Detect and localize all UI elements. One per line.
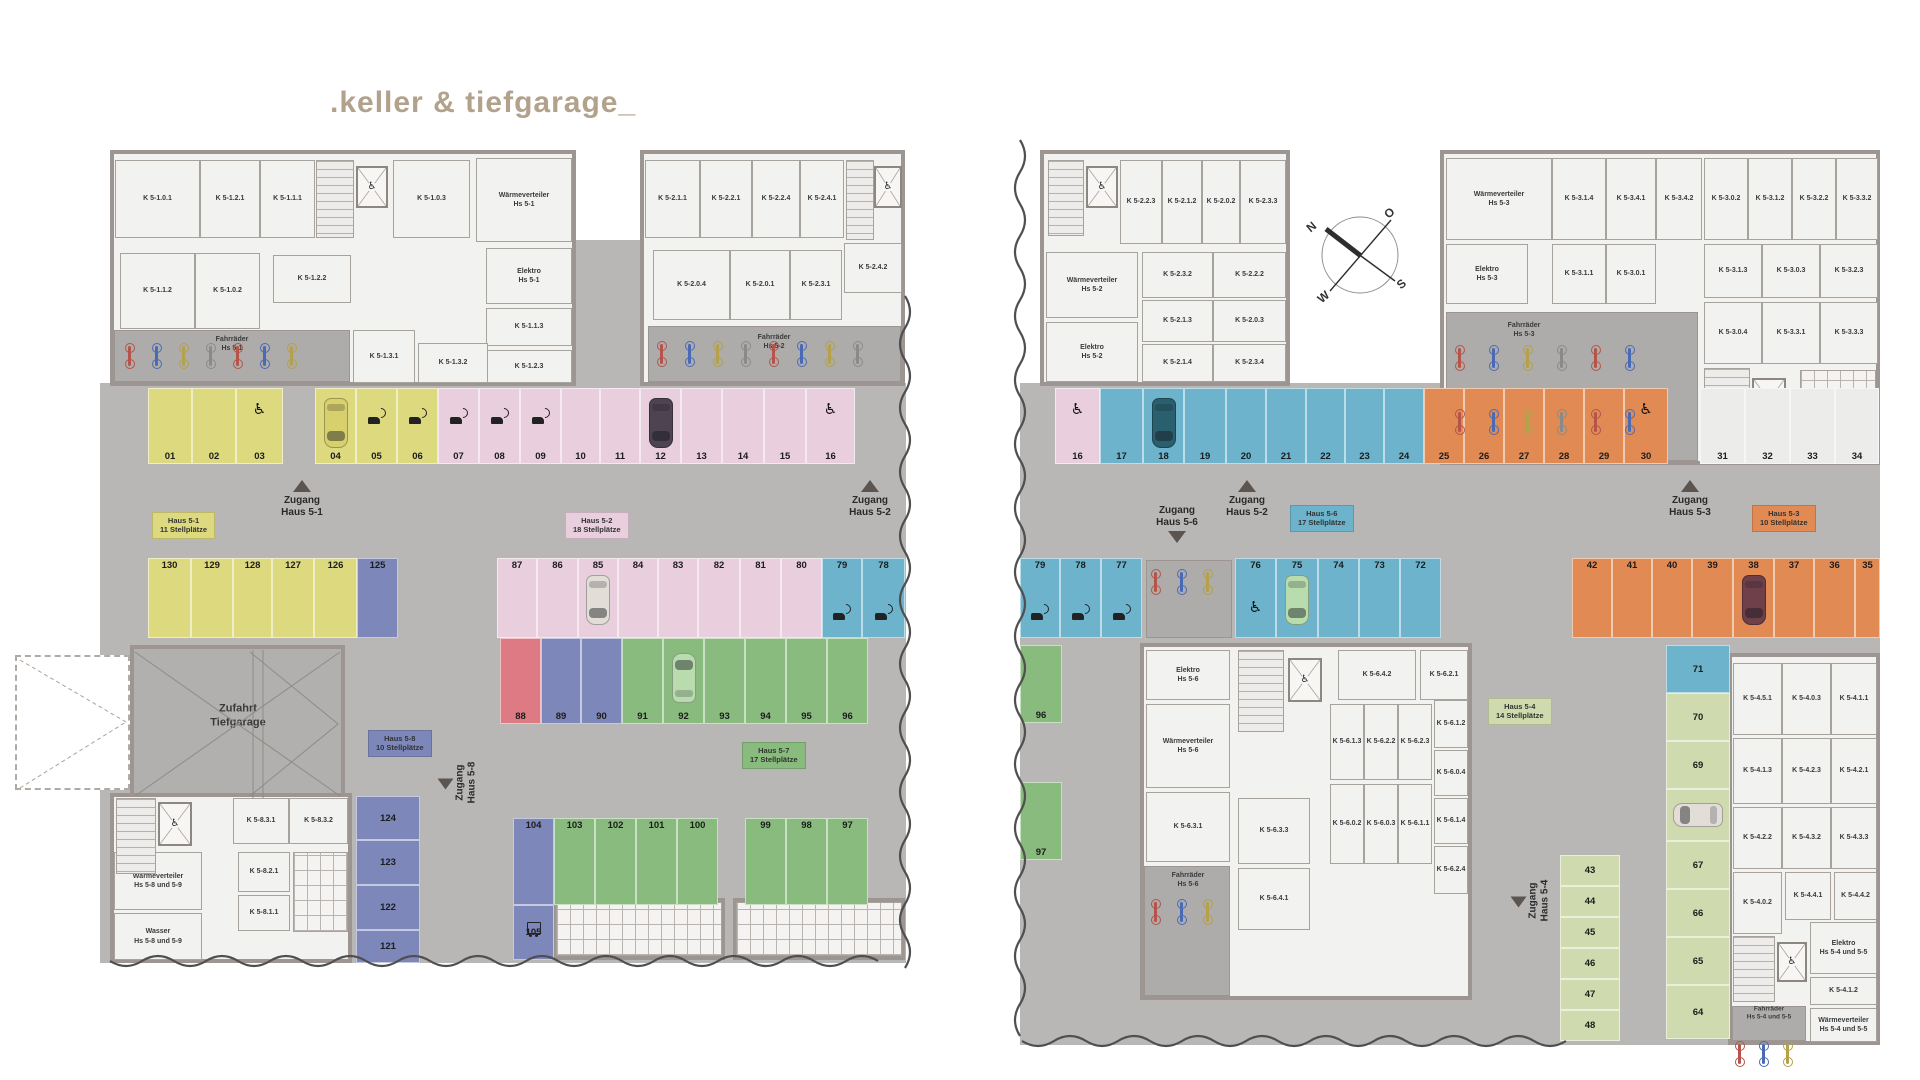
room-label: K 5-6.4.2: [1363, 670, 1392, 679]
room: Wärmeverteiler Hs 5-2: [1046, 252, 1138, 318]
room: K 5-6.2.1: [1420, 650, 1468, 700]
access-label-text: Zugang Haus 5-4: [1528, 859, 1551, 943]
room-label: K 5-8.3.2: [304, 816, 333, 825]
room-label: K 5-2.0.3: [1235, 316, 1264, 325]
room-label: K 5-3.2.2: [1800, 194, 1829, 203]
parking-space: 66: [1666, 889, 1730, 937]
compass-needle-tail: [1361, 256, 1395, 281]
parking-space: 17: [1100, 388, 1143, 464]
parking-space-number: 33: [1790, 451, 1835, 462]
room-label: Wärmeverteiler Hs 5-8 und 5-9: [133, 872, 184, 890]
parking-space: 36: [1814, 558, 1855, 638]
room-label: K 5-1.0.3: [417, 194, 446, 203]
parking-space-number: 28: [1544, 451, 1584, 462]
parking-space-number: 88: [500, 711, 541, 722]
parking-space-number: 86: [537, 560, 578, 571]
room: K 5-6.1.3: [1330, 704, 1364, 780]
bicycle-icon: [128, 346, 131, 366]
room: K 5-2.3.1: [790, 250, 842, 320]
parking-space: 44: [1560, 886, 1620, 917]
stairs: [116, 798, 156, 874]
parking-space: 01: [148, 388, 192, 464]
stall-count-badge: Haus 5-310 Stellplätze: [1752, 505, 1816, 532]
room-label: Elektro Hs 5-6: [1176, 666, 1200, 684]
parking-space-number: 25: [1424, 451, 1464, 462]
room: K 5-6.0.2: [1330, 784, 1364, 864]
parking-space: 07: [438, 388, 479, 464]
parking-space-number: 24: [1384, 451, 1424, 462]
badge-count-label: 10 Stellplätze: [376, 743, 424, 752]
room-label: Elektro Hs 5-2: [1080, 343, 1104, 361]
bicycle-icon: [1458, 412, 1461, 432]
stall-count-badge: Haus 5-717 Stellplätze: [742, 742, 806, 769]
stairs: [1733, 936, 1775, 1002]
badge-count-label: 17 Stellplätze: [750, 755, 798, 764]
badge-count-label: 14 Stellplätze: [1496, 711, 1544, 720]
stairs: [1238, 650, 1284, 732]
parking-space: 100: [677, 818, 718, 905]
room: K 5-4.1.3: [1733, 738, 1782, 804]
page-title: .keller & tiefgarage_: [330, 86, 636, 120]
parking-space: 98: [786, 818, 827, 905]
room-label: K 5-2.1.2: [1168, 197, 1197, 206]
room: K 5-2.3.2: [1142, 252, 1213, 298]
parking-space-number: 21: [1266, 451, 1306, 462]
parking-space-number: 90: [581, 711, 622, 722]
parking-space-number: 34: [1835, 451, 1879, 462]
wheelchair-icon: ♿: [368, 182, 377, 192]
parking-space-number: 128: [233, 560, 272, 571]
parking-space: 78: [862, 558, 905, 638]
parking-space: 13: [681, 388, 722, 464]
stall-count-badge: Haus 5-111 Stellplätze: [152, 512, 215, 539]
parking-space-number: 32: [1745, 451, 1790, 462]
wheelchair-icon: ♿: [1788, 957, 1797, 967]
access-label-text: Zugang Haus 5-1: [260, 495, 344, 518]
ev-charging-icon: [875, 604, 893, 620]
room: K 5-2.1.4: [1142, 344, 1213, 382]
wheelchair-icon: ♿: [1055, 402, 1100, 417]
room-label: K 5-1.1.3: [515, 322, 544, 331]
room-label: Elektro Hs 5-4 und 5-5: [1820, 939, 1868, 957]
parking-space-number: 94: [745, 711, 786, 722]
ev-charging-icon: [1113, 604, 1131, 620]
ev-charging-icon: [1072, 604, 1090, 620]
compass-needle: [1326, 229, 1361, 256]
parking-space: 08: [479, 388, 520, 464]
room: K 5-6.1.4: [1434, 798, 1468, 844]
parking-space-number: 38: [1733, 560, 1774, 571]
car: [1285, 575, 1309, 625]
parking-space: 15: [764, 388, 806, 464]
room-label: K 5-4.2.2: [1743, 833, 1772, 842]
room: K 5-1.0.3: [393, 160, 470, 238]
bicycle-icon: [1628, 348, 1631, 368]
bicycle-icon: [1154, 902, 1157, 922]
wheelchair-icon: ♿: [1098, 182, 1107, 192]
parking-space: 77: [1101, 558, 1142, 638]
room-label: K 5-2.4.1: [808, 194, 837, 203]
room: K 5-1.2.2: [273, 255, 351, 303]
parking-space-number: 20: [1226, 451, 1266, 462]
bicycle-icon: [772, 344, 775, 364]
room: K 5-4.1.1: [1831, 663, 1877, 735]
room-label: K 5-3.4.2: [1665, 194, 1694, 203]
room: K 5-2.1.2: [1162, 160, 1202, 244]
access-triangle-icon: [293, 480, 311, 492]
room: K 5-4.2.3: [1782, 738, 1831, 804]
parking-space-number: 78: [862, 560, 905, 571]
parking-space: 97: [827, 818, 868, 905]
parking-space: 86: [537, 558, 578, 638]
parking-space-number: 95: [786, 711, 827, 722]
bicycle-icon: [744, 344, 747, 364]
badge-count-label: 10 Stellplätze: [1760, 518, 1808, 527]
parking-space-number: 79: [822, 560, 862, 571]
parking-space-number: 85: [578, 560, 618, 571]
badge-haus-label: Haus 5-4: [1496, 702, 1544, 711]
parking-space-number: 125: [357, 560, 398, 571]
access-label-text: Zugang Haus 5-8: [455, 741, 478, 825]
room: K 5-3.1.2: [1748, 158, 1792, 240]
parking-space: 129: [191, 558, 233, 638]
parking-space-number: 27: [1504, 451, 1544, 462]
badge-haus-label: Haus 5-2: [573, 516, 621, 525]
bicycle-icon: [182, 346, 185, 366]
room-label: Wärmeverteiler Hs 5-3: [1474, 190, 1525, 208]
elevator: ♿: [874, 166, 902, 208]
parking-space-number: 81: [740, 560, 781, 571]
parking-space: 22: [1306, 388, 1345, 464]
stairs: [846, 160, 874, 240]
storage-lockers: [556, 902, 722, 956]
room: K 5-2.2.4: [752, 160, 800, 238]
ev-charging-icon: [450, 408, 468, 424]
parking-space-number: 26: [1464, 451, 1504, 462]
room: Elektro Hs 5-6: [1146, 650, 1230, 700]
parking-space: 130: [148, 558, 191, 638]
room: Elektro Hs 5-2: [1046, 322, 1138, 382]
floor-plan-canvas: .keller & tiefgarage_ K 5-1.0.1K 5-1.2.1…: [0, 0, 1920, 1080]
room-label: K 5-6.4.1: [1260, 894, 1289, 903]
bicycle-icon: [263, 346, 266, 366]
room-label: K 5-6.1.4: [1437, 816, 1466, 825]
parking-space-number: 123: [356, 840, 420, 885]
parking-space: 78: [1060, 558, 1101, 638]
room-label: K 5-3.0.4: [1719, 328, 1748, 337]
room: K 5-4.4.1: [1785, 872, 1831, 920]
parking-space-number: 01: [148, 451, 192, 462]
parking-space-number: 91: [622, 711, 663, 722]
parking-space: 35: [1855, 558, 1880, 638]
bicycle-icon: [1628, 412, 1631, 432]
room: K 5-4.0.3: [1782, 663, 1831, 735]
room-label: K 5-1.2.3: [515, 362, 544, 371]
parking-space: 46: [1560, 948, 1620, 979]
ev-charging-icon: [409, 408, 427, 424]
elevator: ♿: [1086, 166, 1118, 208]
parking-space: 95: [786, 638, 827, 724]
parking-space: 124: [356, 796, 420, 840]
parking-space: 38: [1733, 558, 1774, 638]
room: K 5-1.2.1: [200, 160, 260, 238]
parking-space: 68: [1666, 789, 1730, 841]
parking-space-number: 22: [1306, 451, 1345, 462]
bicycle-icon: [688, 344, 691, 364]
parking-space-number: 83: [658, 560, 698, 571]
access-label: Zugang Haus 5-8: [437, 741, 478, 825]
parking-space-number: 73: [1359, 560, 1400, 571]
parking-space-number: 122: [356, 885, 420, 930]
parking-space: 04: [315, 388, 356, 464]
parking-space-number: 103: [554, 820, 595, 831]
shopping-cart-icon: [527, 922, 541, 934]
parking-space: 87: [497, 558, 537, 638]
parking-space-number: 77: [1101, 560, 1142, 571]
parking-space-number: 45: [1560, 917, 1620, 948]
parking-space-number: 44: [1560, 886, 1620, 917]
room: Wasser Hs 5-8 und 5-9: [114, 913, 202, 960]
badge-count-label: 11 Stellplätze: [160, 525, 207, 534]
room-label: K 5-4.1.3: [1743, 766, 1772, 775]
parking-space-number: 104: [513, 820, 554, 831]
room: K 5-3.2.3: [1820, 244, 1878, 298]
room-label: K 5-3.3.3: [1835, 328, 1864, 337]
parking-space-number: 10: [561, 451, 600, 462]
wheelchair-icon: ♿: [884, 182, 893, 192]
bicycle-icon: [290, 346, 293, 366]
parking-space-number: 75: [1276, 560, 1318, 571]
parking-space: 37: [1774, 558, 1814, 638]
parking-space: 42: [1572, 558, 1612, 638]
car: [672, 653, 696, 703]
room: K 5-2.0.4: [653, 250, 730, 320]
access-label: Zugang Haus 5-6: [1135, 505, 1219, 546]
parking-space-number: 89: [541, 711, 581, 722]
parking-space: 97: [1020, 782, 1062, 860]
room: K 5-2.0.2: [1202, 160, 1240, 244]
room: K 5-4.2.1: [1831, 738, 1877, 804]
parking-space: 127: [272, 558, 314, 638]
parking-space-number: 126: [314, 560, 357, 571]
parking-space: 23: [1345, 388, 1384, 464]
wheelchair-icon: ♿: [236, 402, 283, 417]
room: K 5-3.0.4: [1704, 302, 1762, 364]
parking-space: 79: [1020, 558, 1060, 638]
parking-space-number: 12: [640, 451, 681, 462]
room: Wärmeverteiler Hs 5-1: [476, 158, 572, 242]
room: K 5-3.0.1: [1606, 244, 1656, 304]
access-label: Zugang Haus 5-1: [260, 480, 344, 518]
parking-space-number: 102: [595, 820, 636, 831]
parking-space-number: 69: [1666, 741, 1730, 789]
parking-space-number: 71: [1666, 645, 1730, 693]
parking-space-number: 66: [1666, 889, 1730, 937]
parking-space-number: 06: [397, 451, 438, 462]
car: [1742, 575, 1766, 625]
access-label-text: Zugang Haus 5-2: [828, 495, 912, 518]
room: K 5-2.2.3: [1120, 160, 1162, 244]
parking-space-number: 65: [1666, 937, 1730, 985]
bicycle-icon: [155, 346, 158, 366]
parking-space: 102: [595, 818, 636, 905]
parking-space-number: 16: [1055, 451, 1100, 462]
bicycle-icon: [1594, 348, 1597, 368]
elevator: ♿: [356, 166, 388, 208]
access-triangle-icon: [1681, 480, 1699, 492]
room: K 5-6.3.1: [1146, 792, 1230, 862]
room-label: K 5-3.3.2: [1843, 194, 1872, 203]
room-label: K 5-8.3.1: [247, 816, 276, 825]
room: K 5-6.2.4: [1434, 846, 1468, 894]
room-label: K 5-2.1.4: [1163, 358, 1192, 367]
room: K 5-3.4.2: [1656, 158, 1702, 240]
parking-space: 14: [722, 388, 764, 464]
wheelchair-icon: ♿: [1235, 600, 1276, 615]
room: K 5-4.0.2: [1733, 872, 1782, 934]
room-label: K 5-3.1.2: [1756, 194, 1785, 203]
parking-space: 05: [356, 388, 397, 464]
room-label: K 5-6.3.3: [1260, 826, 1289, 835]
bicycle-icon: [800, 344, 803, 364]
room-label: K 5-6.2.2: [1367, 737, 1396, 746]
ev-charging-icon: [532, 408, 550, 424]
stall-count-badge: Haus 5-218 Stellplätze: [565, 512, 629, 539]
elevator: ♿: [1288, 658, 1322, 702]
parking-space-number: 07: [438, 451, 479, 462]
area-label-text: Fahrräder Hs 5-1: [216, 336, 249, 352]
room-label: K 5-1.1.1: [273, 194, 302, 203]
room: K 5-3.4.1: [1606, 158, 1656, 240]
parking-space: 90: [581, 638, 622, 724]
bicycle-icon: [716, 344, 719, 364]
room: K 5-2.2.2: [1213, 252, 1286, 298]
parking-space-number: 72: [1400, 560, 1441, 571]
parking-space: 104: [513, 818, 554, 905]
ev-charging-icon: [368, 408, 386, 424]
room: K 5-4.3.2: [1782, 807, 1831, 869]
parking-space: 76♿: [1235, 558, 1276, 638]
parking-space-number: 129: [191, 560, 233, 571]
room-label: K 5-3.0.3: [1777, 266, 1806, 275]
room: K 5-3.3.1: [1762, 302, 1820, 364]
driveway-outline: [15, 655, 130, 790]
room: K 5-3.3.2: [1836, 158, 1878, 240]
room-label: K 5-6.0.3: [1367, 819, 1396, 828]
parking-space: 93: [704, 638, 745, 724]
room: K 5-4.5.1: [1733, 663, 1782, 735]
room-label: K 5-6.0.2: [1333, 819, 1362, 828]
bicycle-icon: [1492, 412, 1495, 432]
room-label: K 5-3.4.1: [1617, 194, 1646, 203]
parking-space: 16♿: [1055, 388, 1100, 464]
access-triangle-icon: [1510, 897, 1526, 908]
parking-space-number: 84: [618, 560, 658, 571]
parking-space-number: 42: [1572, 560, 1612, 571]
room-label: K 5-3.1.3: [1719, 266, 1748, 275]
room-label: K 5-6.0.4: [1437, 768, 1466, 777]
area-label: Zufahrt Tiefgarage: [210, 702, 265, 731]
room-label: K 5-4.1.1: [1840, 694, 1869, 703]
ev-charging-icon: [833, 604, 851, 620]
room: Elektro Hs 5-1: [486, 248, 572, 304]
parking-space: 09: [520, 388, 561, 464]
parking-space: 89: [541, 638, 581, 724]
parking-space: 43: [1560, 855, 1620, 886]
parking-space: 92: [663, 638, 704, 724]
bicycle-icon: [1458, 348, 1461, 368]
room-label: K 5-4.3.2: [1792, 833, 1821, 842]
room-label: K 5-4.4.2: [1841, 891, 1870, 900]
parking-space: 94: [745, 638, 786, 724]
parking-space: 99: [745, 818, 786, 905]
bicycle-icon: [1206, 902, 1209, 922]
parking-space: 41: [1612, 558, 1652, 638]
room: K 5-1.2.3: [486, 350, 572, 383]
parking-space-number: 87: [497, 560, 537, 571]
bicycle-icon: [856, 344, 859, 364]
parking-space-number: 48: [1560, 1010, 1620, 1041]
access-label-text: Zugang Haus 5-3: [1648, 495, 1732, 518]
room: K 5-1.0.1: [115, 160, 200, 238]
badge-count-label: 18 Stellplätze: [573, 525, 621, 534]
access-label: Zugang Haus 5-3: [1648, 480, 1732, 518]
badge-haus-label: Haus 5-3: [1760, 509, 1808, 518]
parking-space-number: 11: [600, 451, 640, 462]
room: K 5-8.3.1: [233, 798, 289, 844]
parking-space: 18: [1143, 388, 1184, 464]
room-label: K 5-1.3.1: [370, 352, 399, 361]
parking-space-number: 02: [192, 451, 236, 462]
parking-space: 103: [554, 818, 595, 905]
room: K 5-6.2.3: [1398, 704, 1432, 780]
room-label: K 5-8.1.1: [250, 908, 279, 917]
room-label: K 5-4.0.2: [1743, 898, 1772, 907]
area-label: Fahrräder Hs 5-3: [1508, 321, 1541, 339]
parking-space: 02: [192, 388, 236, 464]
room: K 5-2.4.2: [844, 243, 902, 293]
room-label: Wasser Hs 5-8 und 5-9: [134, 927, 182, 945]
compass-crossline: [1330, 220, 1391, 291]
room: K 5-4.4.2: [1834, 872, 1877, 920]
parking-space-number: 43: [1560, 855, 1620, 886]
parking-space: 64: [1666, 985, 1730, 1039]
room: K 5-6.2.2: [1364, 704, 1398, 780]
room-label: K 5-2.2.2: [1235, 270, 1264, 279]
parking-space-number: 100: [677, 820, 718, 831]
parking-space-number: 70: [1666, 693, 1730, 741]
parking-space-number: 124: [356, 796, 420, 840]
stall-count-badge: Haus 5-414 Stellplätze: [1488, 698, 1552, 725]
parking-space: 81: [740, 558, 781, 638]
car: [1673, 803, 1723, 827]
room-label: K 5-1.0.1: [143, 194, 172, 203]
parking-space-number: 97: [1020, 847, 1062, 858]
area-label: Fahrräder Hs 5-1: [216, 335, 249, 353]
car: [324, 398, 348, 448]
room-label: K 5-2.3.4: [1235, 358, 1264, 367]
stall-count-badge: Haus 5-810 Stellplätze: [368, 730, 432, 757]
room: K 5-6.1.1: [1398, 784, 1432, 864]
parking-space: 45: [1560, 917, 1620, 948]
room-label: K 5-6.1.3: [1333, 737, 1362, 746]
room-label: K 5-4.2.1: [1840, 766, 1869, 775]
parking-space-number: 17: [1100, 451, 1143, 462]
parking-space-number: 18: [1143, 451, 1184, 462]
room: K 5-3.0.2: [1704, 158, 1748, 240]
parking-space: 73: [1359, 558, 1400, 638]
elevator: ♿: [158, 802, 192, 846]
